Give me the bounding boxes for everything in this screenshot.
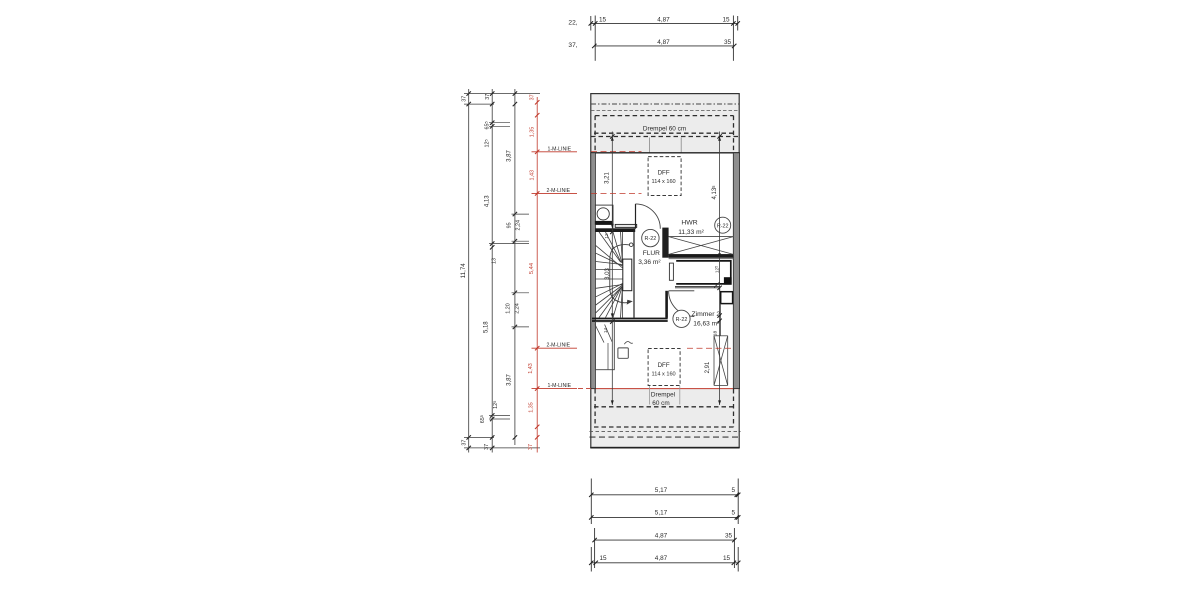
svg-text:11,33 m²: 11,33 m²	[678, 229, 704, 236]
svg-text:95: 95	[507, 222, 513, 228]
svg-text:18: 18	[712, 331, 718, 337]
svg-text:35: 35	[725, 532, 733, 539]
svg-text:4,87: 4,87	[655, 555, 668, 562]
svg-text:3,21: 3,21	[605, 172, 611, 184]
svg-text:37: 37	[485, 94, 491, 100]
svg-text:DFF: DFF	[658, 169, 670, 176]
svg-text:3,87: 3,87	[507, 150, 513, 162]
svg-text:1,43: 1,43	[528, 363, 534, 374]
svg-text:13: 13	[491, 258, 497, 264]
svg-text:HWR: HWR	[681, 220, 697, 227]
svg-text:R-22: R-22	[717, 223, 729, 229]
svg-text:4,13: 4,13	[485, 195, 491, 207]
svg-text:Drempel: Drempel	[651, 392, 675, 399]
svg-text:2,24: 2,24	[515, 303, 521, 314]
svg-text:16,63 m²: 16,63 m²	[693, 321, 720, 328]
svg-text:37: 37	[530, 94, 536, 100]
svg-text:FLUR: FLUR	[643, 250, 660, 257]
svg-text:35: 35	[724, 39, 732, 46]
svg-text:1,35: 1,35	[528, 402, 534, 413]
svg-text:15: 15	[722, 16, 730, 23]
svg-text:22,: 22,	[568, 20, 577, 27]
svg-text:14: 14	[603, 328, 609, 334]
svg-text:37,: 37,	[568, 42, 577, 49]
svg-text:1,20: 1,20	[506, 303, 512, 314]
svg-text:15: 15	[599, 16, 607, 23]
svg-text:5,17: 5,17	[655, 510, 668, 517]
svg-text:37: 37	[462, 96, 468, 102]
svg-text:15: 15	[723, 555, 731, 562]
svg-text:3,03: 3,03	[605, 268, 611, 280]
svg-text:4,87: 4,87	[657, 39, 670, 46]
svg-text:Drempel 60 cm: Drempel 60 cm	[643, 126, 686, 133]
svg-text:R-22: R-22	[645, 236, 657, 242]
svg-text:5: 5	[732, 510, 736, 517]
svg-text:2,91: 2,91	[705, 361, 711, 373]
svg-text:Zimmer 2: Zimmer 2	[691, 311, 720, 318]
svg-text:1,35: 1,35	[530, 127, 536, 138]
svg-text:2,24: 2,24	[516, 220, 522, 231]
svg-text:4,87: 4,87	[657, 16, 670, 23]
svg-text:114 x 160: 114 x 160	[652, 179, 676, 185]
svg-text:114 x 160: 114 x 160	[652, 372, 676, 378]
svg-text:5: 5	[732, 487, 736, 494]
svg-text:5,17: 5,17	[655, 487, 668, 494]
svg-text:37: 37	[484, 444, 490, 450]
svg-text:3,36 m²: 3,36 m²	[638, 259, 661, 266]
svg-text:15: 15	[599, 555, 607, 562]
svg-text:5,18: 5,18	[484, 321, 490, 333]
svg-text:37: 37	[528, 444, 534, 450]
svg-text:37: 37	[462, 440, 468, 446]
svg-text:1,43: 1,43	[530, 170, 536, 181]
svg-text:11,74: 11,74	[460, 263, 467, 279]
svg-text:4,87: 4,87	[655, 532, 668, 539]
svg-text:DFF: DFF	[658, 362, 670, 369]
svg-text:5,44: 5,44	[529, 262, 535, 274]
svg-text:3,87: 3,87	[506, 374, 512, 386]
svg-text:R-22: R-22	[676, 317, 688, 323]
